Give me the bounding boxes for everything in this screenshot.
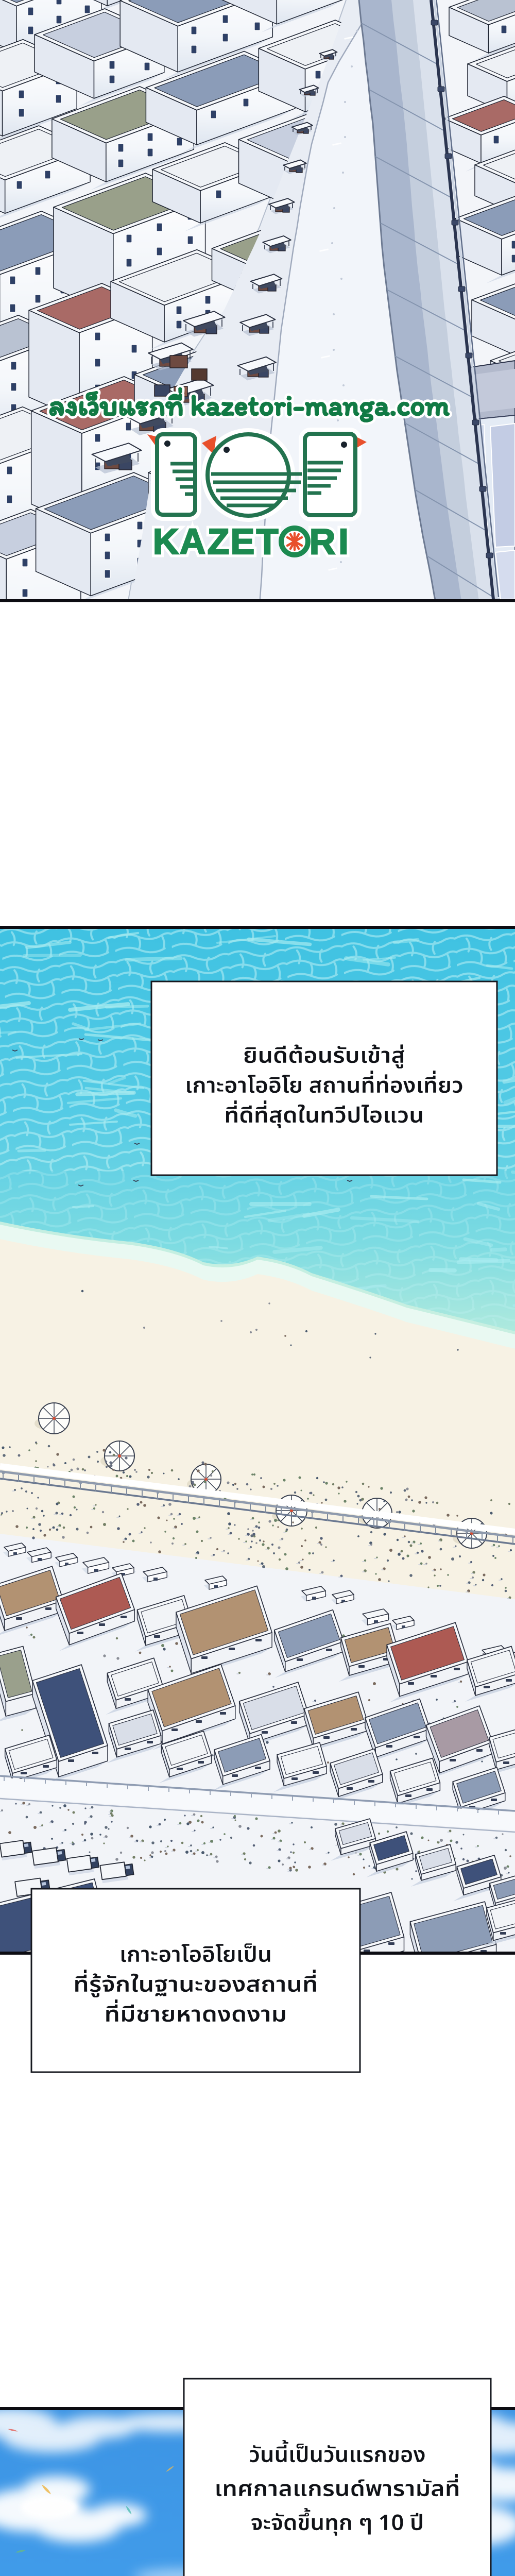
- svg-text:E: E: [231, 521, 255, 562]
- svg-text:Z: Z: [208, 521, 230, 562]
- svg-text:R: R: [310, 521, 336, 562]
- svg-text:T: T: [256, 521, 279, 562]
- svg-text:K: K: [153, 521, 179, 562]
- svg-text:I: I: [338, 521, 348, 562]
- svg-text:A: A: [180, 521, 206, 562]
